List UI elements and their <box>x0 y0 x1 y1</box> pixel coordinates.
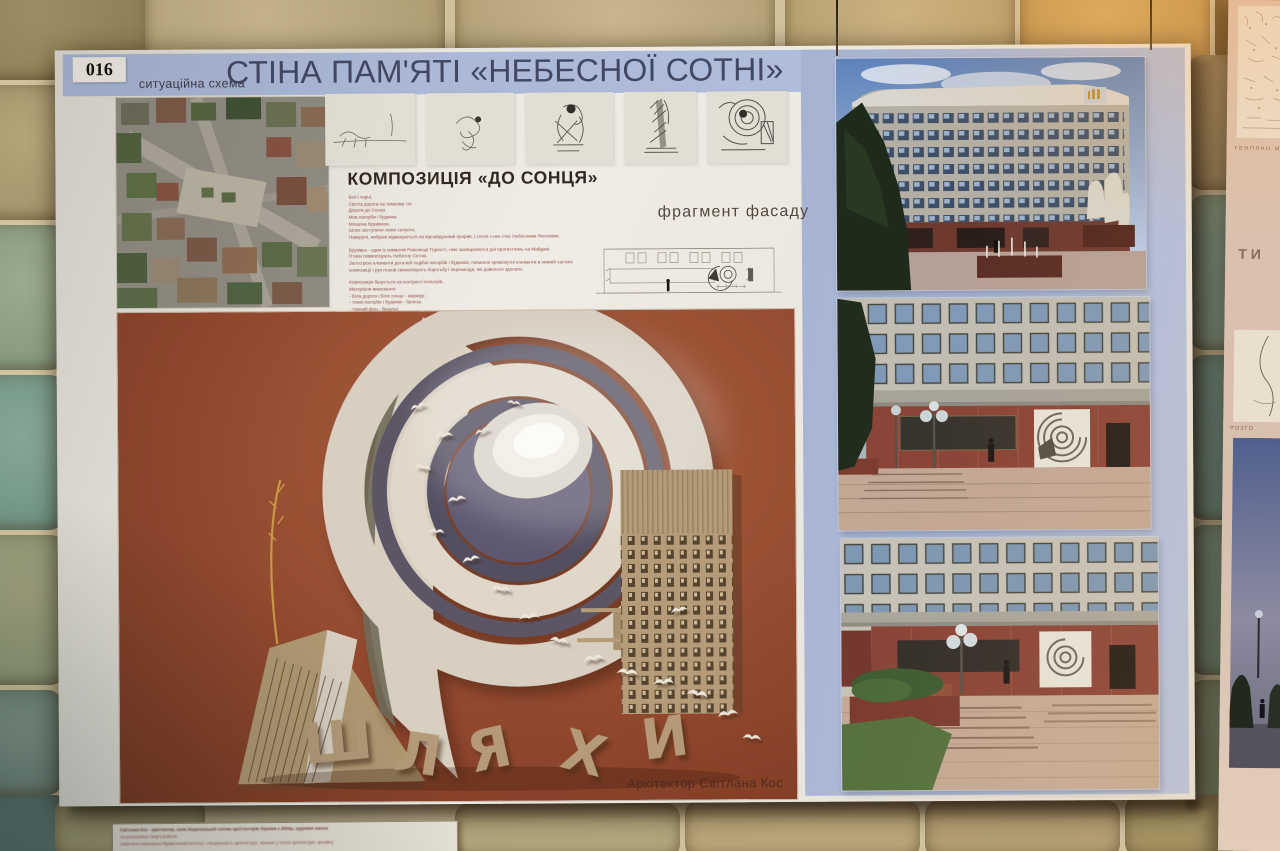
photo-of-exhibition-wall: 016 ситуаційна схема СТІНА ПАМ'ЯТІ «НЕБЕ… <box>0 0 1280 851</box>
sketch-thumbnail <box>325 93 415 166</box>
photo-building-entrance-2 <box>841 537 1160 791</box>
photo-building-full <box>836 57 1146 291</box>
genplan-label: ГЕНПЛАН М <box>1235 146 1280 153</box>
stone <box>0 690 62 795</box>
svg-text:И: И <box>638 703 693 773</box>
sketch-thumbnail <box>525 92 613 165</box>
caption-card: Світлана Кос - архітектор, член Націонал… <box>112 820 458 851</box>
facade-fragment-label: фрагмент фасаду <box>658 203 810 222</box>
evening-photo <box>1229 438 1280 769</box>
competition-poster: 016 ситуаційна схема СТІНА ПАМ'ЯТІ «НЕБЕ… <box>55 44 1196 807</box>
svg-text:Л: Л <box>390 719 446 790</box>
hanging-string <box>1150 0 1152 50</box>
hanging-string <box>836 0 838 56</box>
genplan-sketch <box>1237 6 1280 139</box>
rozgortka-label: РОЗГО <box>1230 426 1254 432</box>
svg-text:Ш: Ш <box>300 707 375 778</box>
entry-number-badge: 016 <box>73 57 126 82</box>
stone <box>0 535 65 685</box>
adjacent-poster: ГЕНПЛАН М ТИ РОЗГО <box>1218 0 1280 851</box>
sketch-thumbnail <box>624 92 696 164</box>
sketch-thumbnail <box>707 91 787 163</box>
photo-building-entrance <box>837 297 1150 531</box>
type-label: ТИ <box>1238 246 1265 262</box>
model-photo: Ш Л Я Х И Архітектор Світлана Кос <box>117 309 797 803</box>
elevation-sketch <box>1233 330 1280 423</box>
facade-drawing <box>596 232 782 307</box>
caption-card-text: Світлана Кос - архітектор, член Націонал… <box>120 825 450 849</box>
memorial-banner <box>900 416 1016 451</box>
stone <box>0 375 64 530</box>
lawn <box>842 716 952 791</box>
composition-heading: КОМПОЗИЦІЯ «ДО СОНЦЯ» <box>347 167 598 190</box>
sketch-thumbnail <box>426 93 514 166</box>
satellite-map-graphic <box>116 97 329 308</box>
concept-sketch-row <box>325 91 787 166</box>
satellite-map-image <box>116 97 329 308</box>
poster-title: СТІНА ПАМ'ЯТІ «НЕБЕСНОЇ СОТНІ» <box>205 51 805 92</box>
architect-credit: Архітектор Світлана Кос <box>627 775 783 791</box>
